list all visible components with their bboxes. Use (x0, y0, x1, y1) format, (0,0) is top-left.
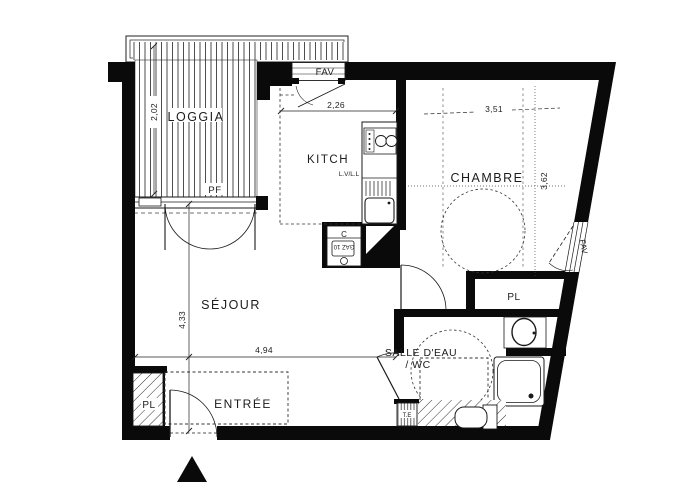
burner (376, 136, 387, 147)
bathroom-door (377, 353, 399, 399)
faucet-dot (533, 332, 536, 335)
wall-closet-living-top (133, 366, 167, 373)
electrical-panel: T.E (395, 399, 419, 426)
loggia-label: LOGGIA (168, 110, 225, 124)
living-label: SÉJOUR (201, 297, 261, 312)
dim-living-depth-label: 4,33 (177, 311, 187, 329)
closet-living-label: PL (142, 400, 155, 411)
electrical-panel-label: T.E (403, 413, 412, 419)
boiler-label: C (341, 230, 347, 239)
toilet-bowl (455, 407, 487, 428)
bedroom-window-fav: FAV (549, 222, 589, 272)
dim-bedroom-depth: 3,62 (535, 86, 549, 276)
turning-circle-bathroom (411, 330, 493, 412)
floor-plan-svg: LOGGIA PF 2,02 (0, 0, 689, 496)
kitchen-counter (362, 122, 397, 224)
loggia-floor (135, 60, 257, 197)
window-swing-arc (296, 86, 313, 105)
wall-basin-shower-divider (506, 348, 566, 356)
faucet-dot (388, 202, 391, 205)
wall-bottom-left (122, 426, 170, 440)
burner (386, 136, 397, 147)
kitchen-label: KITCH (307, 154, 349, 166)
wall-top-loggia-leg (257, 62, 270, 100)
dim-bedroom-width: 3,51 (424, 104, 560, 114)
dim-bedroom-depth-label: 3,62 (539, 172, 549, 190)
pf-window-label: PF (208, 185, 221, 196)
wall-bathroom-top (394, 309, 571, 317)
boiler-unit: C GAZ 10 (327, 226, 361, 266)
kitchen: FAV 2,26 (278, 63, 399, 225)
wall-left-cap (108, 62, 124, 82)
closet-living: PL (133, 373, 163, 426)
wall-closet-bedroom-top (466, 271, 578, 279)
wall-closet-bedroom-left (466, 279, 475, 309)
floor-plan: LOGGIA PF 2,02 (0, 0, 689, 496)
dim-living-width-label: 4,94 (255, 345, 273, 355)
bedroom-door (401, 265, 446, 310)
entrance-door (170, 390, 217, 437)
wall-top (345, 62, 616, 80)
drain-dot (529, 394, 534, 399)
pf-end-post (256, 196, 268, 210)
kitchen-sink (365, 198, 394, 223)
entrance-marker-triangle (177, 456, 207, 482)
boiler-sub-label: GAZ 10 (333, 243, 354, 249)
fav-top-label: FAV (316, 67, 335, 78)
loggia-sill-box (139, 198, 161, 206)
loggia-floor-strip (133, 42, 345, 60)
dim-loggia-depth-label: 2,02 (149, 103, 159, 121)
dim-bedroom-width-label: 3,51 (485, 104, 503, 114)
dim-living-depth: 4,33 (177, 201, 192, 434)
dim-living-width: 4,94 (132, 345, 399, 360)
closet-bedroom-label: PL (507, 292, 520, 303)
french-door-double (165, 204, 255, 250)
bathroom-label-line2: / WC (405, 359, 430, 371)
kitchen-appliances-label: L.V/L.L (339, 171, 360, 178)
turning-circle-bedroom (441, 189, 525, 273)
entry-label: ENTRÉE (214, 396, 272, 411)
bedroom-label: CHAMBRE (450, 171, 523, 185)
shower-tray (494, 357, 544, 406)
dim-kitchen-width: 2,26 (278, 100, 399, 114)
dim-kitchen-width-label: 2,26 (327, 100, 345, 110)
washbasin (504, 317, 546, 348)
wc-area (418, 400, 506, 429)
loggia-window-pf (134, 196, 268, 210)
